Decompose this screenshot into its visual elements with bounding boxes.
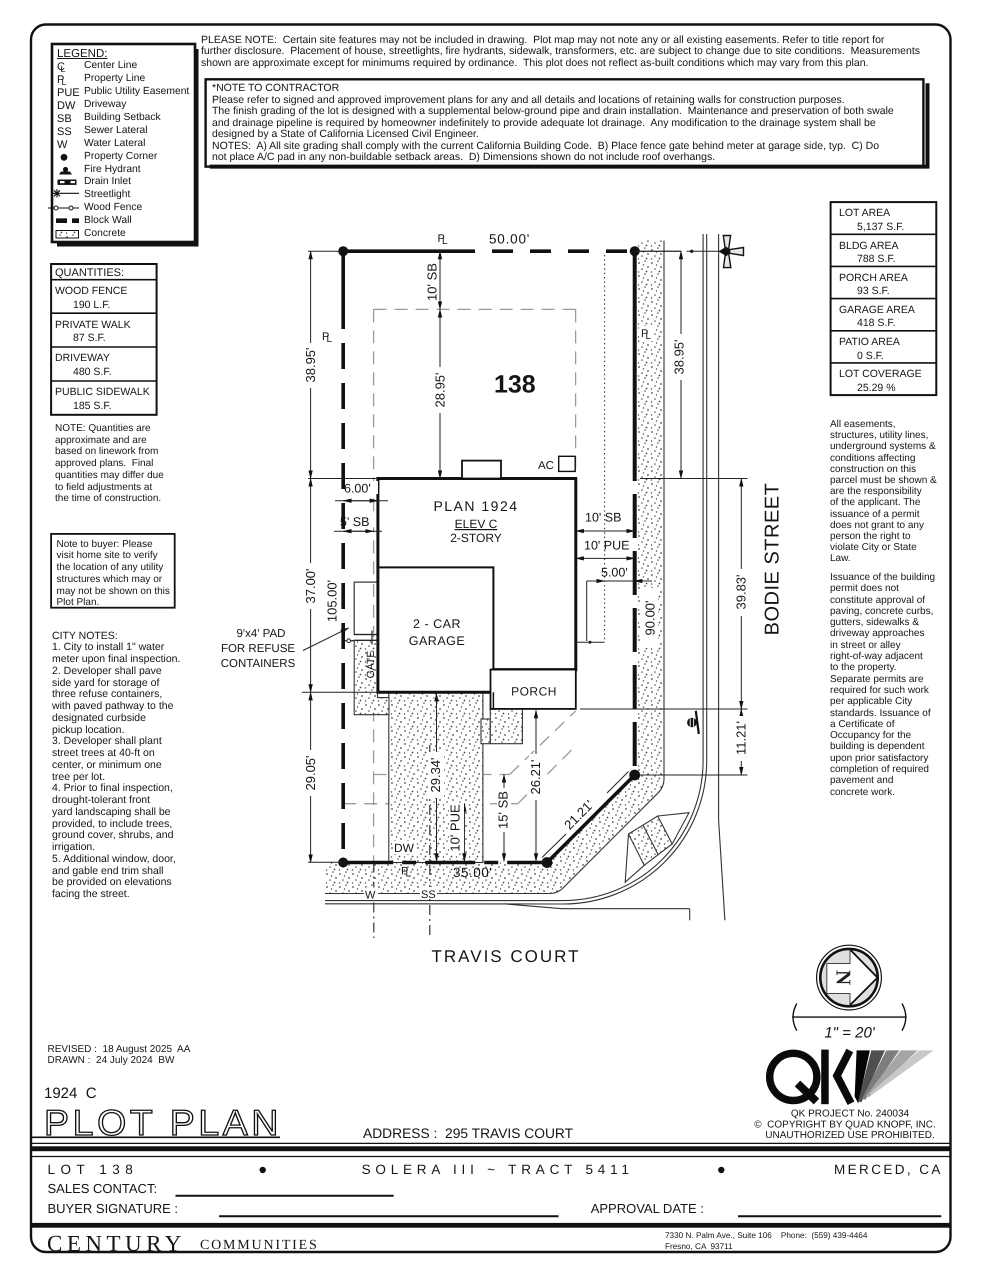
svg-text:26.21': 26.21' <box>528 759 543 794</box>
svg-text:10' PUE: 10' PUE <box>584 539 629 553</box>
svg-text:PUE: PUE <box>57 87 80 99</box>
svg-text:SS: SS <box>421 889 436 901</box>
svg-text:L: L <box>406 869 412 880</box>
svg-text:DW: DW <box>57 100 76 112</box>
svg-text:6.00': 6.00' <box>344 482 371 496</box>
svg-text:L: L <box>61 64 66 74</box>
svg-text:PORCH: PORCH <box>511 685 557 699</box>
svg-text:TRAVIS COURT: TRAVIS COURT <box>432 947 581 966</box>
svg-text:29.34': 29.34' <box>428 757 443 792</box>
svg-text:GATE: GATE <box>365 651 377 679</box>
svg-text:W: W <box>365 890 376 902</box>
svg-text:10' SB: 10' SB <box>425 263 440 301</box>
svg-text:L: L <box>327 334 333 345</box>
svg-text:GARAGE: GARAGE <box>409 634 466 648</box>
svg-text:AC: AC <box>538 460 554 472</box>
svg-text:N: N <box>832 970 856 985</box>
svg-text:10' PUE: 10' PUE <box>448 804 463 852</box>
svg-text:PLAN 1924: PLAN 1924 <box>433 498 518 514</box>
svg-text:L: L <box>62 77 67 87</box>
svg-text:DW: DW <box>394 841 415 855</box>
svg-text:L: L <box>646 331 652 342</box>
svg-text:11.21': 11.21' <box>734 721 749 755</box>
svg-text:29.05': 29.05' <box>303 755 318 790</box>
svg-text:UNAUTHORIZED USE PROHIBITED.: UNAUTHORIZED USE PROHIBITED. <box>765 1130 934 1141</box>
svg-text:2 - CAR: 2 - CAR <box>413 617 461 631</box>
svg-text:SS: SS <box>57 126 72 138</box>
svg-text:L: L <box>442 236 448 247</box>
svg-text:35.00': 35.00' <box>453 865 492 880</box>
svg-text:28.95': 28.95' <box>433 372 448 407</box>
svg-text:FOR REFUSE: FOR REFUSE <box>221 643 295 655</box>
svg-text:10' SB: 10' SB <box>585 511 621 525</box>
svg-text:105.00': 105.00' <box>325 580 340 622</box>
svg-text:QK PROJECT No. 240034: QK PROJECT No. 240034 <box>791 1109 910 1120</box>
svg-text:5' SB: 5' SB <box>340 515 370 529</box>
svg-text:© COPYRIGHT BY QUAD KNOPF, IN: © COPYRIGHT BY QUAD KNOPF, INC. <box>754 1119 935 1130</box>
svg-text:CONTAINERS: CONTAINERS <box>221 658 296 670</box>
svg-text:50.00': 50.00' <box>489 232 530 247</box>
svg-text:BODIE STREET: BODIE STREET <box>762 483 784 636</box>
svg-text:90.00': 90.00' <box>643 600 658 635</box>
svg-text:SB: SB <box>57 113 72 125</box>
svg-text:15' SB: 15' SB <box>496 791 511 829</box>
svg-text:ELEV C: ELEV C <box>455 517 498 531</box>
svg-text:W: W <box>57 139 68 151</box>
svg-text:5.00': 5.00' <box>601 566 628 580</box>
svg-text:38.95': 38.95' <box>303 347 318 382</box>
svg-text:2-STORY: 2-STORY <box>450 531 502 545</box>
svg-text:9'x4' PAD: 9'x4' PAD <box>237 628 286 640</box>
svg-text:1" = 20': 1" = 20' <box>824 1025 875 1042</box>
svg-text:39.83': 39.83' <box>734 574 749 609</box>
svg-text:138: 138 <box>494 371 536 399</box>
svg-text:38.95': 38.95' <box>672 339 687 374</box>
svg-text:37.00': 37.00' <box>303 568 318 603</box>
